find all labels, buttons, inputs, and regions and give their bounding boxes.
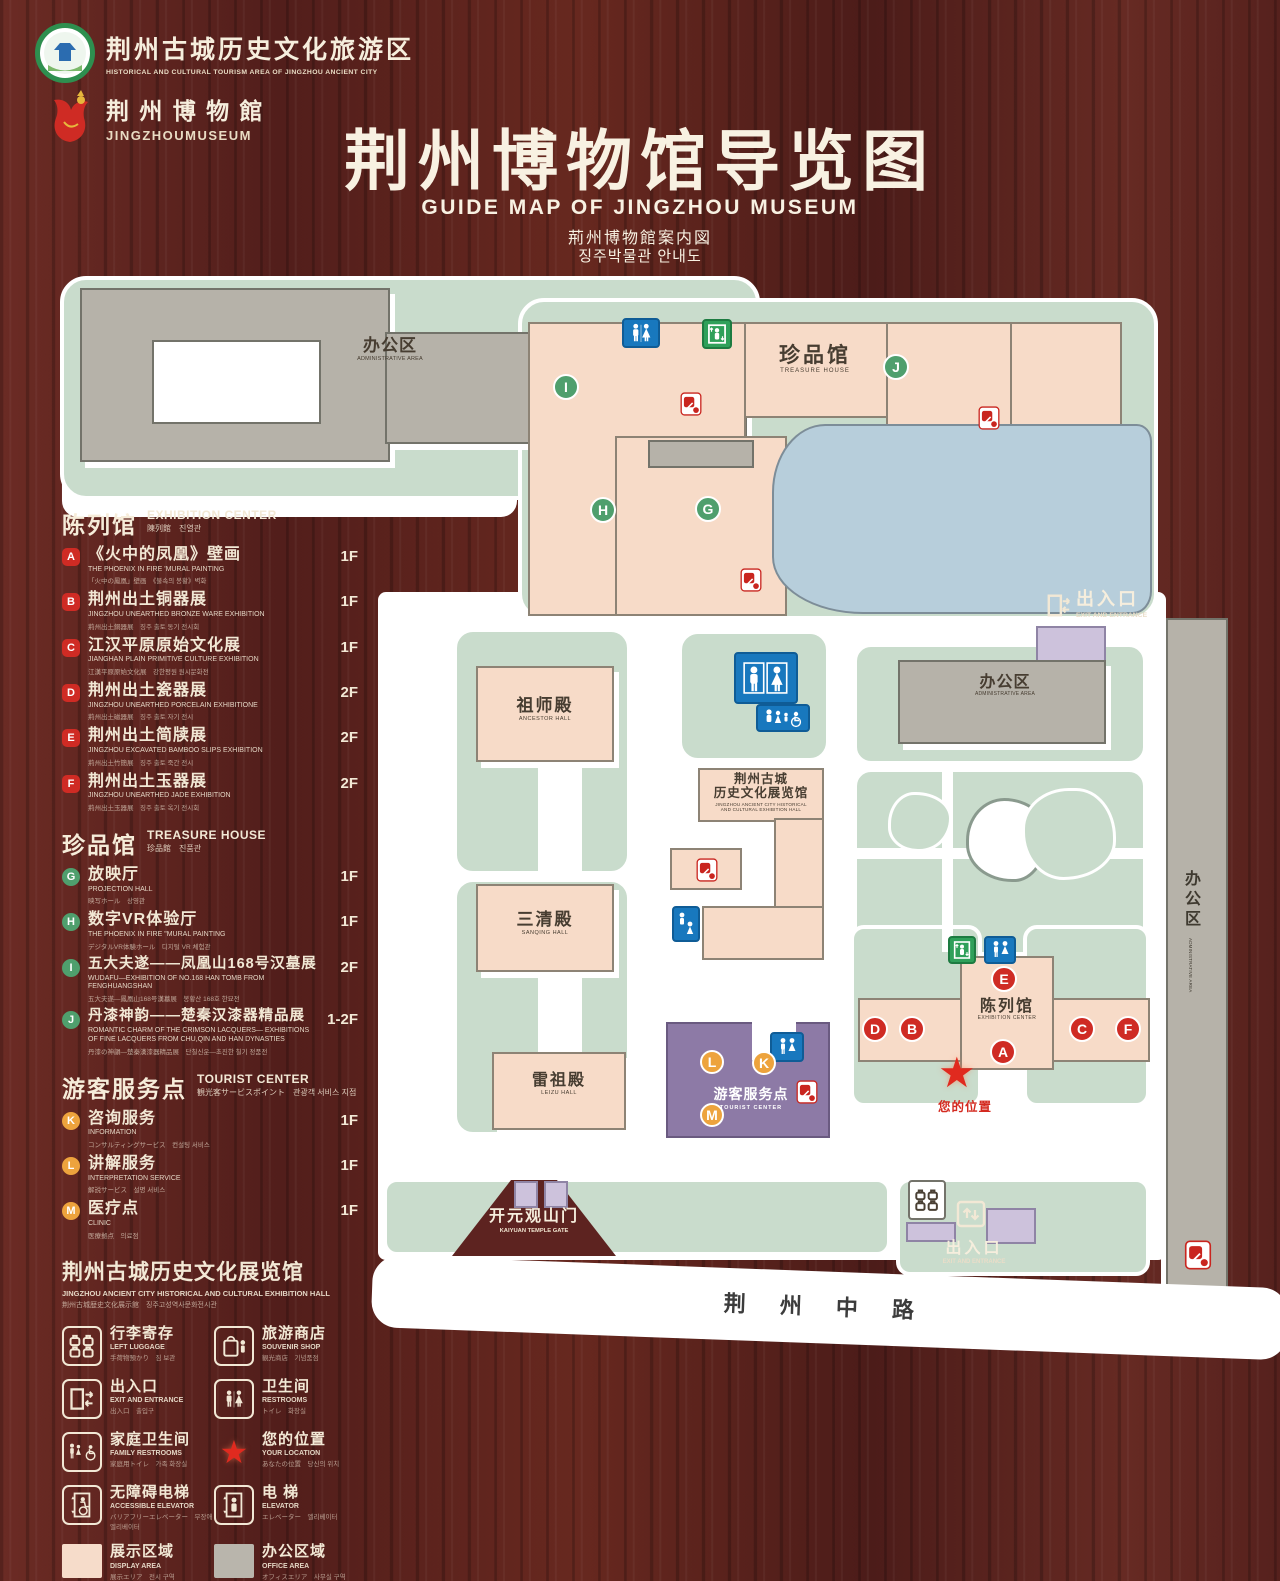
item-en: JINGZHOU UNEARTHED PORCELAIN EXHIBITIONE: [88, 702, 258, 711]
badge-g: G: [62, 868, 80, 886]
section-title-en: TREASURE HOUSE: [147, 828, 266, 842]
sym-sub: エレベーター 엘리베이터: [262, 1511, 337, 1521]
building-admin-west-main: [80, 288, 390, 462]
restroom-icon-exhibition-center: [984, 936, 1016, 964]
item-en: THE PHOENIX IN FIRE "MURAL PAINTING: [88, 931, 225, 940]
legend-souvenir-shop: 旅游商店 SOUVENIR SHOP 観光商店 기념품점: [214, 1326, 362, 1366]
badge-j: J: [62, 1011, 80, 1029]
item-sub: 医療拠点 의료점: [88, 1230, 139, 1240]
admin-east-en: ADMINISTRATIVE AREA: [940, 692, 1070, 698]
corridor-ancestor: [538, 756, 582, 882]
item-en: JINGZHOU UNEARTHED BRONZE WARE EXHIBITIO…: [88, 611, 265, 620]
badge-f: F: [62, 775, 80, 793]
badge-i: I: [62, 959, 80, 977]
sym-en: RESTROOMS: [262, 1397, 310, 1404]
item-cn: 放映厅: [88, 866, 153, 884]
item-floor: 1F: [340, 1112, 358, 1129]
item-en: PROJECTION HALL: [88, 886, 153, 895]
legend-item-i: I 五大夫遂——凤凰山168号汉墓展 WUDAFU—EXHIBITION OF …: [62, 957, 364, 1003]
legend-display-area: 展示区域 DISPLAY AREA 展示エリア 전시 구역: [62, 1544, 214, 1581]
item-floor: 1-2F: [327, 1011, 358, 1028]
sym-en: LEFT LUGGAGE: [110, 1344, 175, 1351]
item-floor: 2F: [340, 959, 358, 976]
escalator-icon-treasure-west: [680, 392, 702, 421]
building-exhibition-hall-south: [702, 906, 824, 960]
your-location-star-icon: ★: [938, 1052, 976, 1094]
item-cn: 数字VR体验厅: [88, 911, 225, 929]
legend-item-c: C 江汉平原原始文化展 JIANGHAN PLAIN PRIMITIVE CUL…: [62, 637, 364, 676]
item-floor: 1F: [340, 913, 358, 930]
sym-en: OFFICE AREA: [262, 1563, 346, 1570]
display-area-swatch: [62, 1544, 102, 1578]
building-admin-east: [898, 660, 1106, 744]
item-cn: 江汉平原原始文化展: [88, 637, 259, 655]
admin-strip-en: ADMINISTRATIVE AREA: [1188, 938, 1193, 992]
marker-a: A: [990, 1039, 1016, 1065]
label-leizu-hall: 雷祖殿 LEIZU HALL: [494, 1072, 624, 1097]
label-your-location: 您的位置: [925, 1096, 1005, 1115]
badge-k: K: [62, 1112, 80, 1130]
legend-accessible-elevator: 无障碍电梯 ACCESSIBLE ELEVATOR バリアフリーエレベーター 무…: [62, 1485, 214, 1532]
restroom-icon-exhibition-hall: [672, 906, 700, 942]
legend-item-f: F 荆州出土玉器展 JINGZHOU UNEARTHED JADE EXHIBI…: [62, 773, 364, 812]
item-sub: デジタルVR体験ホール 디지털 VR 체험관: [88, 941, 225, 951]
courtyard: [152, 340, 321, 424]
sym-sub: 展示エリア 전시 구역: [110, 1571, 175, 1581]
exit-entrance-icon: [62, 1379, 102, 1419]
left-luggage-icon: [62, 1326, 102, 1366]
marker-i: I: [553, 374, 579, 400]
section-title-cn: 珍品馆: [62, 826, 137, 860]
item-en: INTERPRETATION SERVICE: [88, 1175, 181, 1184]
sym-sub: あなたの位置 당신의 위치: [262, 1458, 339, 1468]
exhibition-hall-cn2: 历史文化展览馆: [696, 786, 826, 800]
building-admin-strip-east: 办公区 ADMINISTRATIVE AREA: [1166, 618, 1228, 1312]
badge-d: D: [62, 684, 80, 702]
sym-en: SOUVENIR SHOP: [262, 1344, 326, 1351]
label-admin-east: 办公区 ADMINISTRATIVE AREA: [940, 674, 1070, 698]
ancestor-en: ANCESTOR HALL: [478, 716, 612, 722]
badge-l: L: [62, 1157, 80, 1175]
item-sub: 荊州出土磁器展 징주 출토 자기 전시: [88, 711, 258, 721]
section-title-sub: 珍品館 진품관: [147, 843, 266, 854]
sym-en: EXIT AND ENTRANCE: [110, 1397, 183, 1404]
sym-cn: 家庭卫生间: [110, 1432, 190, 1449]
item-en: ROMANTIC CHARM OF THE CRIMSON LACQUERS— …: [88, 1027, 313, 1045]
legend-family-restrooms: 家庭卫生间 FAMILY RESTROOMS 家庭用トイレ 가족 화장실: [62, 1432, 214, 1472]
hall-note-cn: 荆州古城历史文化展览馆: [62, 1256, 364, 1286]
item-sub: 荊州出土銅器展 징주 출토 동기 전시회: [88, 621, 265, 631]
label-admin-west: 办公区 ADMINISTRATIVE AREA: [315, 336, 465, 362]
item-cn: 荆州出土玉器展: [88, 773, 231, 791]
label-exhibition-center: 陈列馆 EXHIBITION CENTER: [950, 998, 1064, 1022]
badge-h: H: [62, 913, 80, 931]
treasure-en: TREASURE HOUSE: [755, 368, 875, 375]
sym-cn: 电 梯: [262, 1485, 337, 1502]
admin-east-cn: 办公区: [940, 674, 1070, 692]
gate-cn: 开元观山门: [458, 1208, 610, 1226]
label-tourist-center: 游客服务点 TOURIST CENTER: [684, 1084, 818, 1111]
sym-cn: 办公区域: [262, 1544, 346, 1561]
badge-c: C: [62, 639, 80, 657]
section-header: 珍品馆 TREASURE HOUSE 珍品館 진품관: [62, 826, 364, 860]
item-floor: 2F: [340, 729, 358, 746]
sym-cn: 卫生间: [262, 1379, 310, 1396]
exhibition-center-en: EXHIBITION CENTER: [950, 1016, 1064, 1022]
gate-structure-right: [544, 1181, 568, 1208]
escalator-icon-exhibition-hall: [696, 858, 718, 887]
marker-g: G: [695, 496, 721, 522]
item-cn: 丹漆神韵——楚秦汉漆器精品展: [88, 1009, 313, 1025]
sym-cn: 行李寄存: [110, 1326, 175, 1343]
restrooms-icon: [214, 1379, 254, 1419]
badge-b: B: [62, 593, 80, 611]
sym-sub: 観光商店 기념품점: [262, 1352, 326, 1362]
item-sub: 江漢平原原始文化展 강한평원 원시문화전: [88, 666, 259, 676]
elevator-updown-icon-map: [956, 1200, 986, 1233]
legend-item-m: M 医疗点 CLINIC 医療拠点 의료점 1F: [62, 1200, 364, 1239]
label-exhibition-hall: 荆州古城 历史文化展览馆 JINGZHOU ANCIENT CITY HISTO…: [696, 772, 826, 812]
sym-sub: バリアフリーエレベーター 무장애 엘리베이터: [110, 1511, 214, 1531]
sym-en: DISPLAY AREA: [110, 1563, 175, 1570]
item-sub: 荊州出土玉器展 징주 출토 옥기 전시회: [88, 802, 231, 812]
building-treasure-gray-strip: [648, 440, 754, 468]
garden-island-east: [1022, 788, 1116, 880]
marker-h: H: [590, 497, 616, 523]
sym-sub: トイレ 화장실: [262, 1405, 310, 1415]
item-cn: 五大夫遂——凤凰山168号汉墓展: [88, 957, 317, 973]
admin-west-cn: 办公区: [315, 336, 465, 356]
tourist-center-en: TOURIST CENTER: [684, 1105, 818, 1111]
marker-b: B: [899, 1016, 925, 1042]
legend-item-g: G 放映厅 PROJECTION HALL 映写ホール 상영관 1F: [62, 866, 364, 905]
legend-exit-entrance: 出入口 EXIT AND ENTRANCE 出入口 출입구: [62, 1379, 214, 1419]
item-floor: 1F: [340, 1202, 358, 1219]
leizu-en: LEIZU HALL: [494, 1090, 624, 1096]
ancestor-cn: 祖师殿: [478, 696, 612, 716]
admin-west-en: ADMINISTRATIVE AREA: [315, 356, 465, 362]
treasure-cn: 珍品馆: [755, 344, 875, 368]
corridor-sanqing: [538, 962, 582, 1058]
label-admin-strip: 办公区 ADMINISTRATIVE AREA: [1178, 870, 1202, 993]
exit-top-cn: 出入口: [1076, 590, 1186, 610]
item-sub: 荊州出土竹簡展 징주 출토 죽간 전시: [88, 757, 263, 767]
restroom-icon-central: [734, 652, 798, 704]
badge-e: E: [62, 729, 80, 747]
item-floor: 1F: [340, 1157, 358, 1174]
elevator-icon: [214, 1485, 254, 1525]
legend-item-b: B 荆州出土铜器展 JINGZHOU UNEARTHED BRONZE WARE…: [62, 591, 364, 630]
marker-k: K: [752, 1051, 776, 1075]
item-floor: 2F: [340, 775, 358, 792]
sidebar-legend: 陈列馆 EXHIBITION CENTER 陳列館 진열관 A 《火中的凤凰》壁…: [62, 492, 364, 1581]
item-floor: 1F: [340, 868, 358, 885]
section-title-cn: 陈列馆: [62, 506, 137, 540]
item-en: JINGZHOU EXCAVATED BAMBOO SLIPS EXHIBITI…: [88, 747, 263, 756]
label-sanqing-hall: 三清殿 SANQING HALL: [478, 910, 612, 936]
escalator-icon-treasure-east: [978, 406, 1000, 435]
item-cn: 荆州出土瓷器展: [88, 682, 258, 700]
sanqing-cn: 三清殿: [478, 910, 612, 930]
item-cn: 咨询服务: [88, 1110, 210, 1128]
legend-office-area: 办公区域 OFFICE AREA オフィスエリア 사무실 구역: [214, 1544, 362, 1581]
item-sub: 解説サービス 설명 서비스: [88, 1184, 181, 1194]
gate-structure-top: [1036, 626, 1106, 662]
item-sub: 「火中の鳳凰」壁画 《불속의 봉황》벽화: [88, 575, 241, 585]
family-restrooms-icon: [62, 1432, 102, 1472]
tourist-center-cn: 游客服务点: [684, 1084, 818, 1104]
your-location-icon: ★: [214, 1432, 254, 1472]
gate-structure-se-right: [986, 1208, 1036, 1244]
restroom-icon-treasure: [622, 318, 660, 348]
sym-en: ELEVATOR: [262, 1503, 337, 1510]
legend-hall-note: 荆州古城历史文化展览馆 JINGZHOU ANCIENT CITY HISTOR…: [62, 1256, 364, 1310]
legend-left-luggage: 行李寄存 LEFT LUGGAGE 手荷物預かり 짐 보관: [62, 1326, 214, 1366]
sym-en: FAMILY RESTROOMS: [110, 1450, 190, 1457]
hall-note-en: JINGZHOU ANCIENT CITY HISTORICAL AND CUL…: [62, 1289, 364, 1298]
exit-bottom-en: EXIT AND ENTRANCE: [928, 1259, 1020, 1266]
item-cn: 讲解服务: [88, 1155, 181, 1173]
item-floor: 2F: [340, 684, 358, 701]
marker-f: F: [1115, 1016, 1141, 1042]
sym-cn: 展示区域: [110, 1544, 175, 1561]
legend-section-exhibition-center: 陈列馆 EXHIBITION CENTER 陳列館 진열관 A 《火中的凤凰》壁…: [62, 506, 364, 812]
exit-bottom-cn: 出入口: [928, 1240, 1020, 1258]
item-floor: 1F: [340, 548, 358, 565]
leizu-cn: 雷祖殿: [494, 1072, 624, 1090]
legend-item-k: K 咨询服务 INFORMATION コンサルティングサービス 컨설팅 서비스 …: [62, 1110, 364, 1149]
gate-en: KAIYUAN TEMPLE GATE: [458, 1228, 610, 1234]
item-cn: 荆州出土简牍展: [88, 727, 263, 745]
sym-en: ACCESSIBLE ELEVATOR: [110, 1503, 214, 1510]
legend-item-j: J 丹漆神韵——楚秦汉漆器精品展 ROMANTIC CHARM OF THE C…: [62, 1009, 364, 1055]
legend-restrooms: 卫生间 RESTROOMS トイレ 화장실: [214, 1379, 362, 1419]
section-title-cn: 游客服务点: [62, 1070, 187, 1104]
section-title-sub: 陳列館 진열관: [147, 523, 277, 534]
family-restroom-icon-central: [756, 704, 810, 732]
item-cn: 《火中的凤凰》壁画: [88, 546, 241, 564]
treasure-pond: [772, 424, 1152, 614]
item-en: JIANGHAN PLAIN PRIMITIVE CULTURE EXHIBIT…: [88, 656, 259, 665]
exhibition-hall-cn1: 荆州古城: [696, 772, 826, 786]
item-en: WUDAFU—EXHIBITION OF NO.168 HAN TOMB FRO…: [88, 975, 313, 993]
item-floor: 1F: [340, 639, 358, 656]
legend-section-treasure-house: 珍品馆 TREASURE HOUSE 珍品館 진품관 G 放映厅 PROJECT…: [62, 826, 364, 1056]
badge-a: A: [62, 548, 80, 566]
item-sub: 映写ホール 상영관: [88, 895, 153, 905]
sym-sub: 家庭用トイレ 가족 화장실: [110, 1458, 190, 1468]
gate-structure-left: [514, 1181, 538, 1208]
section-header: 游客服务点 TOURIST CENTER 観光客サービスポイント 관광객 서비스…: [62, 1070, 364, 1104]
label-exit-bottom: 出入口 EXIT AND ENTRANCE: [928, 1240, 1020, 1265]
legend-item-l: L 讲解服务 INTERPRETATION SERVICE 解説サービス 설명 …: [62, 1155, 364, 1194]
sym-cn: 旅游商店: [262, 1326, 326, 1343]
item-cn: 荆州出土铜器展: [88, 591, 265, 609]
section-title-en: TOURIST CENTER: [197, 1072, 356, 1086]
exhibition-hall-en2: AND CULTURAL EXHIBITION HALL: [696, 807, 826, 812]
label-gate: 开元观山门 KAIYUAN TEMPLE GATE: [458, 1208, 610, 1234]
marker-j: J: [883, 354, 909, 380]
office-area-swatch: [214, 1544, 254, 1578]
left-luggage-icon-map: [908, 1180, 946, 1220]
gate-structure-se-left: [906, 1222, 956, 1242]
legend-section-tourist-center: 游客服务点 TOURIST CENTER 観光客サービスポイント 관광객 서비스…: [62, 1070, 364, 1240]
sym-cn: 出入口: [110, 1379, 183, 1396]
elevator-icon-exhibition-center: [948, 936, 976, 964]
sanqing-en: SANQING HALL: [478, 930, 612, 936]
section-title-en: EXHIBITION CENTER: [147, 508, 277, 522]
legend-your-location: ★ 您的位置 YOUR LOCATION あなたの位置 당신의 위치: [214, 1432, 362, 1472]
souvenir-shop-icon: [214, 1326, 254, 1366]
section-title-sub: 観光客サービスポイント 관광객 서비스 지점: [197, 1087, 356, 1098]
label-treasure-house: 珍品馆 TREASURE HOUSE: [755, 344, 875, 375]
legend-elevator: 电 梯 ELEVATOR エレベーター 엘리베이터: [214, 1485, 362, 1532]
item-sub: 五大夫遂—鳳凰山168号漢墓展 봉황산 168호 한묘전: [88, 993, 313, 1003]
accessible-elevator-icon: [62, 1485, 102, 1525]
badge-m: M: [62, 1202, 80, 1220]
exhibition-center-cn: 陈列馆: [950, 998, 1064, 1016]
legend-item-h: H 数字VR体验厅 THE PHOENIX IN FIRE "MURAL PAI…: [62, 911, 364, 950]
garden-path-v: [942, 772, 953, 952]
marker-e: E: [991, 966, 1017, 992]
item-en: THE PHOENIX IN FIRE 'MURAL PAINTING: [88, 566, 241, 575]
marker-c: C: [1069, 1016, 1095, 1042]
marker-d: D: [862, 1016, 888, 1042]
elevator-icon-treasure: [702, 319, 732, 349]
item-en: CLINIC: [88, 1220, 139, 1229]
label-exit-top: 出入口 EXIT AND ENTRANCE: [1076, 590, 1186, 619]
label-ancestor-hall: 祖师殿 ANCESTOR HALL: [478, 696, 612, 722]
item-floor: 1F: [340, 593, 358, 610]
exit-icon-top: [1046, 592, 1072, 623]
admin-strip-cn: 办公区: [1182, 870, 1199, 930]
sym-cn: 无障碍电梯: [110, 1485, 214, 1502]
building-exhibition-hall-east: [774, 818, 824, 910]
section-header: 陈列馆 EXHIBITION CENTER 陳列館 진열관: [62, 506, 364, 540]
item-en: JINGZHOU UNEARTHED JADE EXHIBITION: [88, 792, 231, 801]
item-sub: 丹漆の神韻—楚秦漢漆器精品展 단칠신운—초진한 칠기 정품전: [88, 1046, 313, 1056]
legend-symbols: 行李寄存 LEFT LUGGAGE 手荷物預かり 짐 보관 旅游商店 SOUVE…: [62, 1326, 364, 1581]
legend-item-e: E 荆州出土简牍展 JINGZHOU EXCAVATED BAMBOO SLIP…: [62, 727, 364, 766]
sym-sub: オフィスエリア 사무실 구역: [262, 1571, 346, 1581]
sym-cn: 您的位置: [262, 1432, 339, 1449]
legend-item-a: A 《火中的凤凰》壁画 THE PHOENIX IN FIRE 'MURAL P…: [62, 546, 364, 585]
sym-en: YOUR LOCATION: [262, 1450, 339, 1457]
escalator-icon-treasure-south: [740, 568, 762, 597]
item-cn: 医疗点: [88, 1200, 139, 1218]
marker-l: L: [700, 1050, 724, 1074]
sym-sub: 手荷物預かり 짐 보관: [110, 1352, 175, 1362]
escalator-icon-southeast: [1184, 1240, 1212, 1275]
sym-sub: 出入口 출입구: [110, 1405, 183, 1415]
item-en: INFORMATION: [88, 1129, 210, 1138]
legend-item-d: D 荆州出土瓷器展 JINGZHOU UNEARTHED PORCELAIN E…: [62, 682, 364, 721]
hall-note-sub: 荆州古城歴史文化展示館 징주고성역사문화전시관: [62, 1300, 364, 1310]
item-sub: コンサルティングサービス 컨설팅 서비스: [88, 1139, 210, 1149]
